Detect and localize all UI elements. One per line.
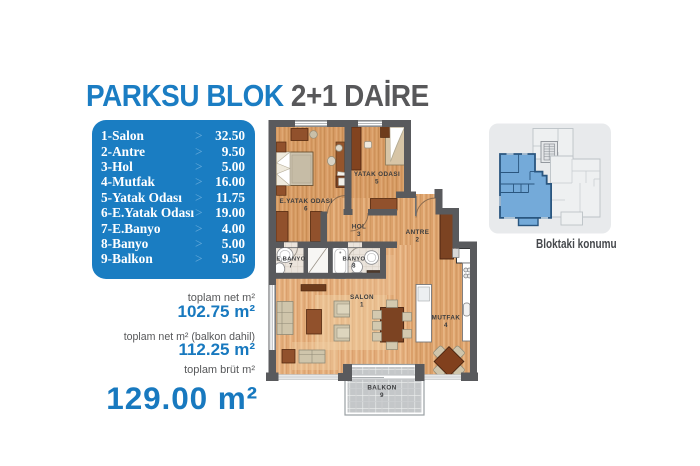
svg-text:SALON: SALON — [350, 294, 374, 301]
svg-text:1: 1 — [360, 302, 364, 309]
svg-text:YATAK ODASI: YATAK ODASI — [354, 171, 400, 178]
svg-text:7: 7 — [289, 263, 293, 270]
svg-text:8: 8 — [352, 263, 356, 270]
svg-text:9: 9 — [380, 392, 384, 399]
svg-text:5: 5 — [375, 179, 379, 186]
svg-text:ANTRE: ANTRE — [406, 229, 430, 236]
svg-text:2: 2 — [416, 237, 420, 244]
svg-text:MUTFAK: MUTFAK — [432, 315, 461, 322]
svg-text:4: 4 — [444, 322, 448, 329]
svg-text:BALKON: BALKON — [367, 384, 396, 391]
svg-text:6: 6 — [304, 206, 308, 213]
svg-text:HOL: HOL — [352, 224, 367, 231]
svg-text:3: 3 — [357, 231, 361, 238]
svg-text:E.YATAK ODASI: E.YATAK ODASI — [279, 198, 332, 205]
